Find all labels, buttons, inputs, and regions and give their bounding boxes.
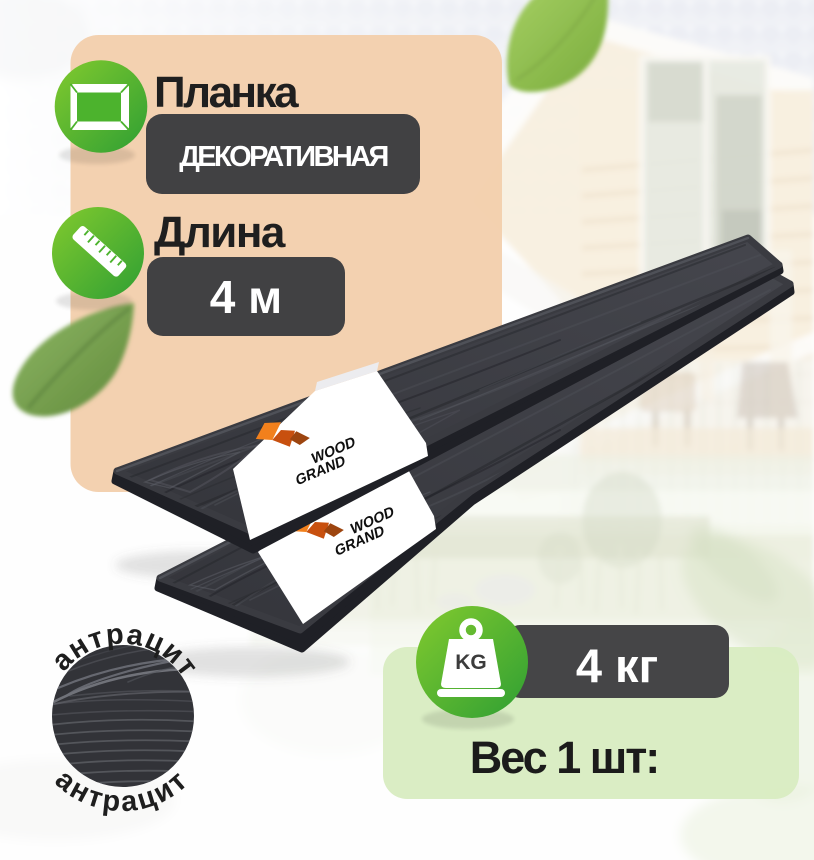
svg-text:ДЕКОРАТИВНАЯ: ДЕКОРАТИВНАЯ bbox=[179, 141, 387, 173]
svg-text:Вес 1 шт:: Вес 1 шт: bbox=[470, 732, 659, 783]
svg-text:Длина: Длина bbox=[154, 208, 286, 257]
svg-text:4 м: 4 м bbox=[210, 271, 282, 323]
svg-text:KG: KG bbox=[455, 651, 487, 674]
svg-text:4 кг: 4 кг bbox=[576, 639, 658, 692]
svg-text:Планка: Планка bbox=[154, 68, 299, 117]
